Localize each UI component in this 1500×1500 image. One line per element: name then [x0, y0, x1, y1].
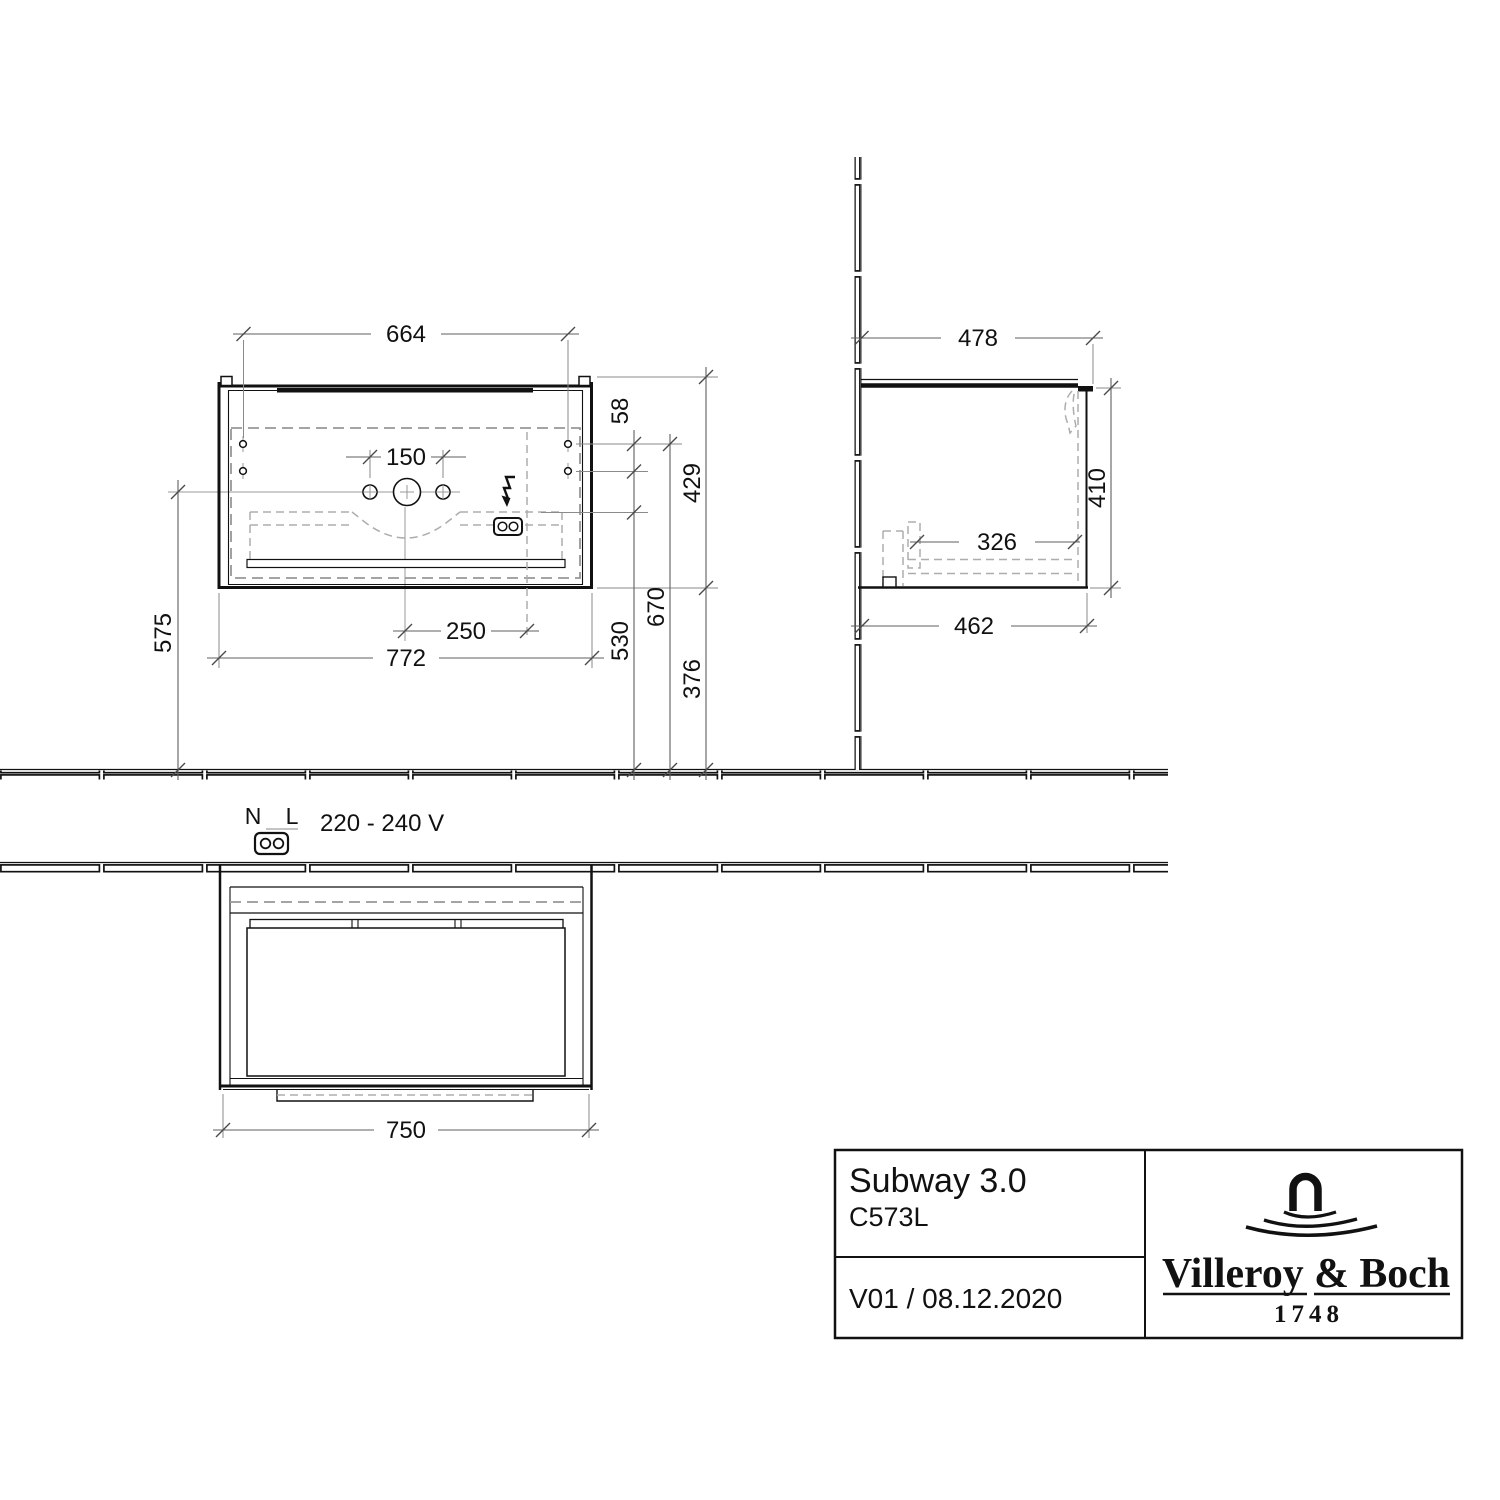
lightning-bolt-icon	[502, 477, 516, 507]
plan-view: 664 150 250 772 575 58 530 670 429 376	[150, 321, 718, 780]
dim-side-inner-depth: 326	[977, 529, 1017, 556]
brand-name: Villeroy & Boch	[1162, 1251, 1450, 1297]
wall-section-vertical	[855, 157, 862, 770]
socket-icon	[255, 833, 288, 854]
side-cabinet-body	[858, 380, 1093, 588]
dim-plan-front-to-wall: 376	[679, 659, 706, 699]
revision-date: V01 / 08.12.2020	[849, 1283, 1062, 1314]
wall-section-lower	[0, 863, 1168, 873]
line-label: L	[286, 803, 299, 829]
top-rail-bar	[277, 388, 533, 393]
villeroy-boch-logo: Villeroy & Boch 1748	[1162, 1177, 1450, 1329]
technical-drawing-sheet: 664 150 250 772 575 58 530 670 429 376	[0, 0, 1500, 1500]
front-bottom-edge	[220, 1079, 592, 1102]
socket-symbol-plan	[494, 518, 522, 535]
side-view: 478 410 326 462	[851, 325, 1121, 640]
neutral-label: N	[245, 803, 262, 829]
voltage-label: 220 - 240 V	[320, 810, 444, 837]
front-view: 750	[213, 865, 599, 1144]
dim-side-depth-top: 478	[958, 325, 998, 352]
dim-plan-outlet-to-wall: 530	[607, 621, 634, 661]
dim-plan-outlet-offset: 250	[446, 618, 486, 645]
title-block: Subway 3.0 C573L V01 / 08.12.2020 Viller…	[835, 1150, 1462, 1338]
series-name: Subway 3.0	[849, 1162, 1027, 1200]
dim-front-width: 750	[386, 1117, 426, 1144]
electrical-connection: N L 220 - 240 V	[245, 803, 444, 854]
dim-plan-center-to-wall: 575	[150, 613, 177, 653]
dim-plan-hole-span: 664	[386, 321, 426, 348]
wall-section-upper	[0, 770, 1168, 780]
mounting-tab-right	[579, 377, 590, 386]
vanity-unit-drawing: 664 150 250 772 575 58 530 670 429 376	[0, 0, 1500, 1500]
dim-plan-hole-rows: 58	[607, 398, 634, 425]
mounting-tab-left	[221, 377, 232, 386]
dim-plan-width: 772	[386, 645, 426, 672]
plan-dimension-lines	[171, 327, 713, 780]
dim-side-height: 410	[1084, 468, 1111, 508]
dim-plan-tap-holes: 150	[386, 444, 426, 471]
brand-year: 1748	[1274, 1301, 1344, 1328]
drawer-rail-plan	[247, 560, 565, 568]
faucet-icon	[1246, 1177, 1377, 1236]
drawer-handle-profile	[1065, 391, 1076, 433]
dim-side-depth-bottom: 462	[954, 613, 994, 640]
dim-plan-holes-to-wall: 670	[643, 587, 670, 627]
article-number: C573L	[849, 1202, 929, 1232]
drawer-front	[247, 920, 565, 1077]
dim-plan-depth: 429	[679, 463, 706, 503]
